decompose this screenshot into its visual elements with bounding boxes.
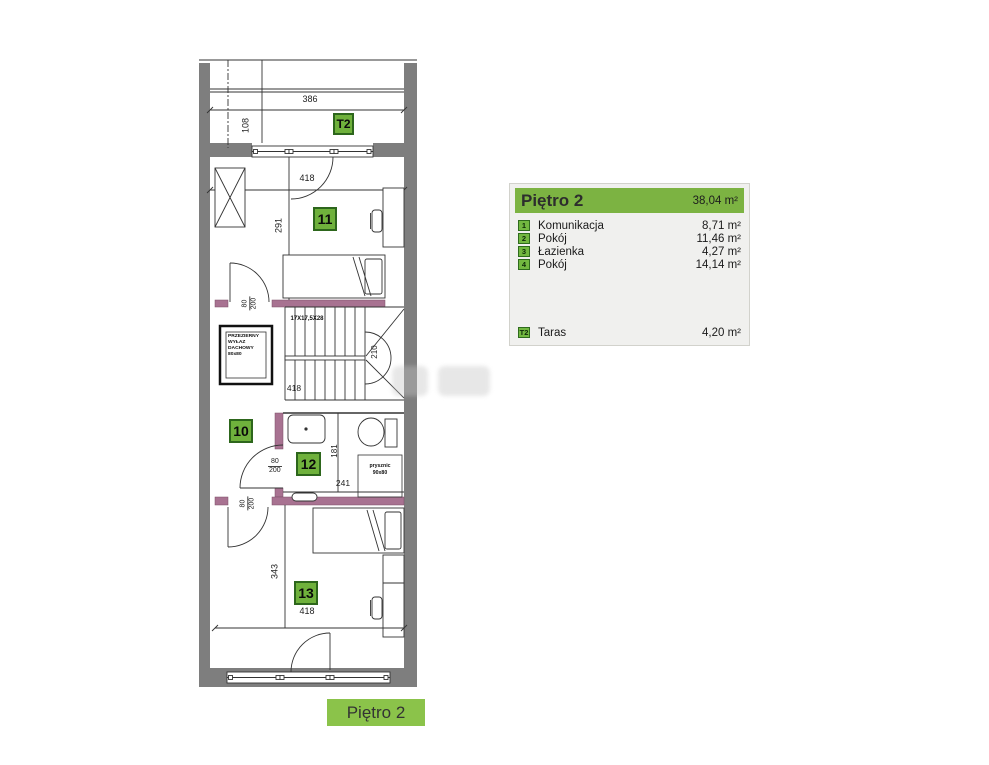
wall-terrace-left xyxy=(199,143,252,157)
legend-room-name: Pokój xyxy=(538,233,696,245)
legend-room-area: 14,14 m² xyxy=(696,259,741,271)
chair-room13 xyxy=(372,597,382,619)
room-badge-terrace: T2 xyxy=(333,113,354,135)
door-height: 200 xyxy=(247,497,256,511)
legend-room-name: Taras xyxy=(538,327,702,339)
legend-badge-1: 1 xyxy=(518,220,530,231)
door-size-room13: 80 200 xyxy=(239,497,256,511)
dim-bath-width: 241 xyxy=(329,479,357,488)
legend-rows: 1 Komunikacja 8,71 m² 2 Pokój 11,46 m² 3… xyxy=(518,219,741,339)
room-badge-11: 11 xyxy=(313,207,337,231)
radiator xyxy=(292,493,317,501)
terrace-sliding-door xyxy=(252,146,373,157)
shower-label: prysznic 90x80 xyxy=(359,463,401,477)
legend-room-area: 4,27 m² xyxy=(702,246,741,258)
legend-room-name: Pokój xyxy=(538,259,696,271)
legend-room-name: Komunikacja xyxy=(538,220,702,232)
shower-label-line: 90x80 xyxy=(359,470,401,477)
door-size-bathroom: 80 200 xyxy=(268,458,282,475)
room-badge-10: 10 xyxy=(229,419,253,443)
dim-room11-width: 418 xyxy=(287,174,327,183)
floor-caption: Piętro 2 xyxy=(327,699,425,726)
watermark-shape xyxy=(438,366,490,396)
legend-row-pokoj-2: 2 Pokój 11,46 m² xyxy=(518,232,741,245)
legend-room-area: 8,71 m² xyxy=(702,220,741,232)
chair-room11 xyxy=(372,210,382,232)
legend-room-area: 11,46 m² xyxy=(696,233,741,245)
door-width: 80 xyxy=(241,300,249,308)
door-arc-room13 xyxy=(228,507,268,547)
terrace-roof-lines xyxy=(199,60,417,148)
door-width: 80 xyxy=(271,458,279,466)
legend-row-lazienka: 3 Łazienka 4,27 m² xyxy=(518,245,741,258)
legend-room-area: 4,20 m² xyxy=(702,327,741,339)
wall-terrace-right xyxy=(373,143,404,157)
balcony-door-arc xyxy=(291,633,330,672)
legend-badge-t2: T2 xyxy=(518,327,530,338)
legend-room-name: Łazienka xyxy=(538,246,702,258)
toilet-bowl xyxy=(358,418,384,446)
watermark-shape xyxy=(392,366,428,396)
legend-badge-2: 2 xyxy=(518,233,530,244)
door-size-room11: 80 200 xyxy=(241,297,258,311)
dim-room13-height: 343 xyxy=(271,558,280,586)
skylight-label: PRZEZIERNY WYŁAZ DACHOWY 80x80 xyxy=(228,334,268,359)
bottom-window xyxy=(227,672,390,683)
door-height: 200 xyxy=(249,297,258,311)
dim-stairs-width: 418 xyxy=(279,384,309,393)
legend-title: Piętro 2 xyxy=(521,191,583,211)
legend-badge-4: 4 xyxy=(518,259,530,270)
dim-bath-height: 181 xyxy=(331,437,339,465)
stairs-step-label: 17X17,5X28 xyxy=(277,316,337,322)
skylight-label-line: 80x80 xyxy=(228,352,268,358)
legend-header: Piętro 2 38,04 m² xyxy=(515,188,744,213)
dim-stairs-height: 210 xyxy=(371,338,379,366)
door-width: 80 xyxy=(239,500,247,508)
dim-room13-width: 418 xyxy=(287,607,327,616)
dim-room11-height: 291 xyxy=(275,212,284,240)
toilet-tank xyxy=(385,419,397,447)
legend-badge-3: 3 xyxy=(518,246,530,257)
room-badge-13: 13 xyxy=(294,581,318,605)
dim-terrace-depth: 108 xyxy=(242,113,251,139)
pillow-room11 xyxy=(365,259,382,294)
legend-row-komunikacja: 1 Komunikacja 8,71 m² xyxy=(518,219,741,232)
bathroom xyxy=(240,413,404,501)
desk-room13 xyxy=(383,555,404,637)
watermark xyxy=(392,366,532,400)
dim-terrace-width: 386 xyxy=(290,95,330,104)
floorplan-page: T2 11 10 12 13 386 108 418 291 210 418 1… xyxy=(0,0,989,765)
door-height: 200 xyxy=(268,466,282,475)
legend-row-taras: T2 Taras 4,20 m² xyxy=(518,326,741,339)
desk-room11 xyxy=(383,188,404,247)
pillow-room13 xyxy=(385,512,401,549)
legend-panel: Piętro 2 38,04 m² 1 Komunikacja 8,71 m² … xyxy=(509,183,750,346)
legend-row-pokoj-4: 4 Pokój 14,14 m² xyxy=(518,258,741,271)
floor-plan: T2 11 10 12 13 386 108 418 291 210 418 1… xyxy=(195,55,425,700)
room-badge-12: 12 xyxy=(296,452,321,476)
shower-label-line: prysznic xyxy=(359,463,401,470)
legend-total-area: 38,04 m² xyxy=(693,195,738,207)
stairs-rail xyxy=(285,356,365,360)
